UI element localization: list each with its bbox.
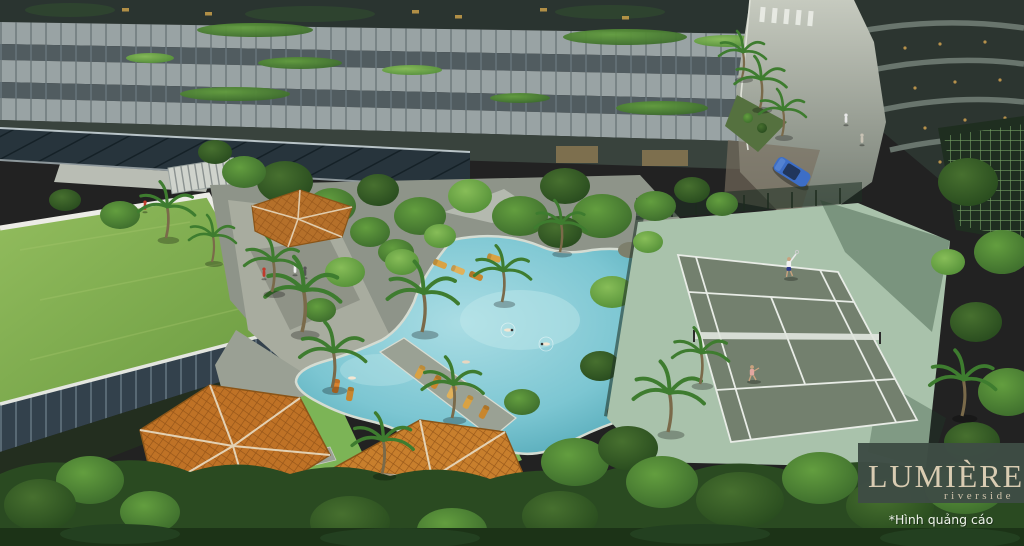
tennis-court [604,182,950,470]
disclaimer-text: *Hình quảng cáo [889,512,993,527]
aerial-rendering: LUMIÈRE riverside *Hình quảng cáo *Hình … [0,0,1024,546]
tower-facade [0,0,772,192]
brand-name: LUMIÈRE [868,458,1024,494]
brand-tagline: riverside [944,490,1014,502]
